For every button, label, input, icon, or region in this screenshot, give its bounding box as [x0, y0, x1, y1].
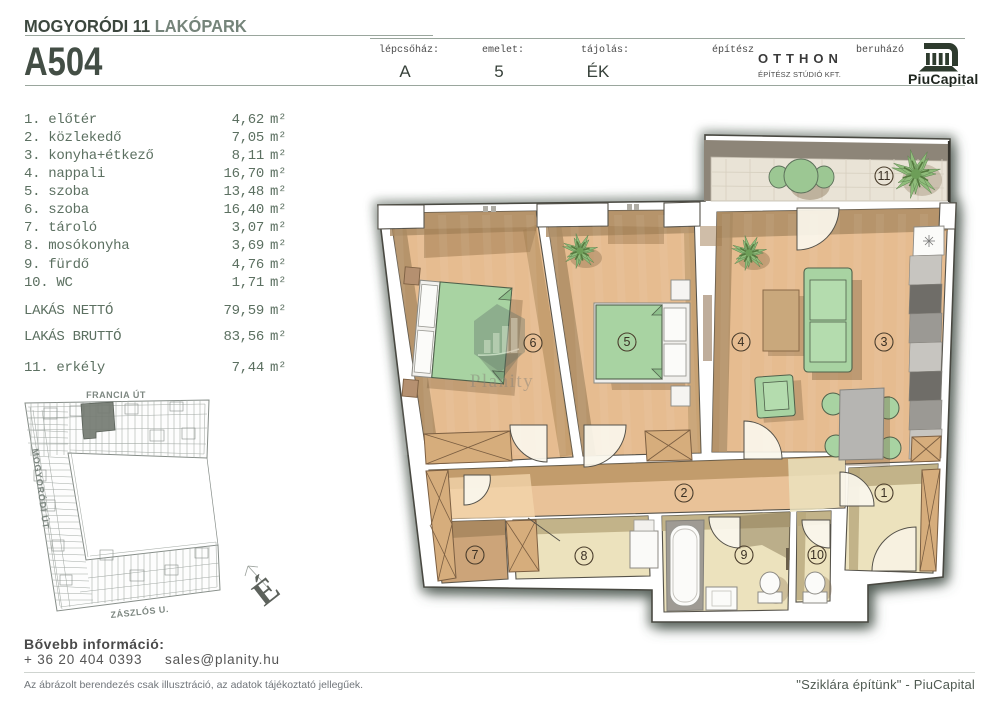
- svg-text:5: 5: [624, 335, 631, 349]
- svg-text:Planity: Planity: [470, 371, 534, 392]
- svg-text:10: 10: [810, 548, 824, 562]
- svg-text:7: 7: [472, 548, 479, 562]
- svg-text:ZÁSZLÓS U.: ZÁSZLÓS U.: [110, 603, 169, 620]
- svg-text:É: É: [246, 570, 287, 613]
- svg-text:9: 9: [741, 548, 748, 562]
- svg-text:11: 11: [878, 169, 891, 183]
- svg-text:1: 1: [881, 486, 888, 500]
- svg-text:FRANCIA ÚT: FRANCIA ÚT: [86, 389, 146, 400]
- svg-text:2: 2: [681, 486, 688, 500]
- svg-text:4: 4: [738, 335, 745, 349]
- svg-text:8: 8: [581, 549, 588, 563]
- svg-text:6: 6: [530, 336, 537, 350]
- svg-text:3: 3: [881, 335, 888, 349]
